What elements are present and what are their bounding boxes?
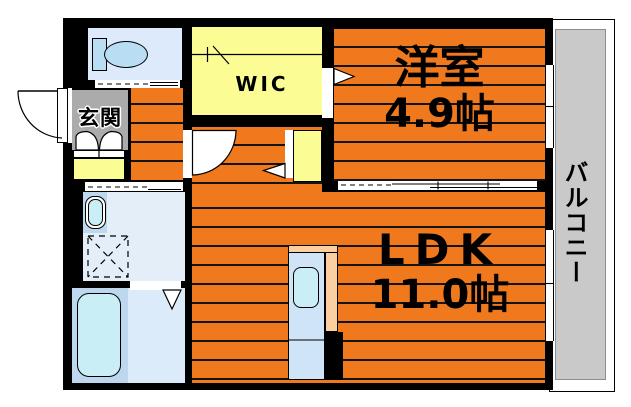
hall-door (183, 130, 192, 178)
wic-door (322, 68, 333, 118)
bathroom-door (130, 281, 181, 290)
entrance-label: 玄関 (70, 102, 130, 132)
entrance-door-leaf-icon (57, 88, 68, 143)
bathtub-icon (77, 293, 121, 377)
western-room-label: 洋室 (334, 44, 545, 93)
window-western-room (545, 65, 554, 148)
partition-sliding-door (338, 181, 537, 190)
bathroom-floor (128, 288, 185, 383)
balcony-label: バルコニー (556, 145, 592, 300)
washroom-sliding-door (85, 182, 183, 191)
entrance-door-arc-icon (18, 91, 62, 138)
floor-plan: 玄関 WIC 洋室 4.9帖 LDK 11.0帖 バルコニー (0, 0, 631, 407)
wic-room (192, 27, 322, 115)
wash-basin-icon (88, 199, 103, 226)
toilet-sliding-door (95, 80, 180, 88)
hall-closet (293, 130, 322, 182)
closet-door (285, 130, 293, 178)
entrance-step (73, 150, 125, 158)
shoe-cabinet (73, 158, 125, 180)
hallway (131, 88, 183, 180)
window-ldk (545, 230, 554, 341)
western-room-size: 4.9帖 (334, 93, 545, 136)
ldk-size: 11.0帖 (335, 273, 545, 318)
kitchen-sink-icon (293, 267, 319, 308)
ldk-label-group: LDK 11.0帖 (335, 226, 545, 318)
wic-label: WIC (222, 72, 302, 96)
western-room-label-group: 洋室 4.9帖 (334, 44, 545, 136)
toilet-icon (104, 41, 148, 68)
ldk-label: LDK (335, 226, 545, 273)
kitchen-wall-stub (325, 332, 343, 380)
